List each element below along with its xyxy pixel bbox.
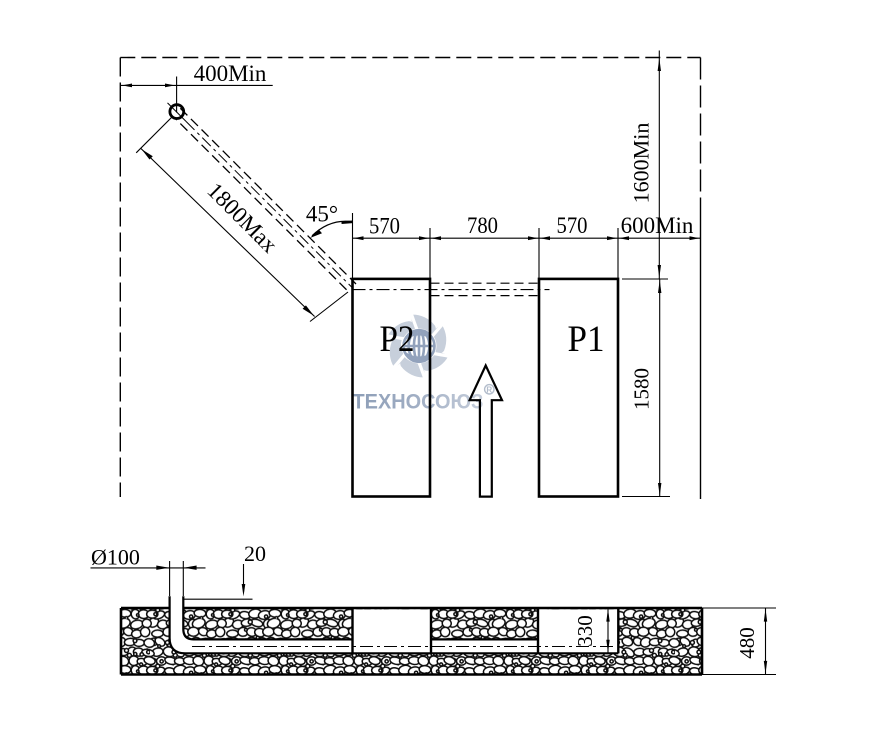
svg-text:400Min: 400Min xyxy=(194,61,267,86)
svg-text:1580: 1580 xyxy=(630,368,654,410)
svg-text:480: 480 xyxy=(735,627,759,659)
svg-text:780: 780 xyxy=(467,213,498,238)
svg-text:1600Min: 1600Min xyxy=(629,123,654,204)
svg-text:ТЕХНОСОЮЗ: ТЕХНОСОЮЗ xyxy=(353,389,484,413)
svg-text:R: R xyxy=(486,385,492,394)
svg-text:Ø100: Ø100 xyxy=(91,545,140,570)
svg-text:P1: P1 xyxy=(568,319,605,360)
svg-text:570: 570 xyxy=(369,214,400,239)
svg-text:330: 330 xyxy=(573,615,597,647)
svg-text:600Min: 600Min xyxy=(621,213,694,238)
svg-text:570: 570 xyxy=(557,213,588,238)
svg-text:20: 20 xyxy=(244,541,266,566)
